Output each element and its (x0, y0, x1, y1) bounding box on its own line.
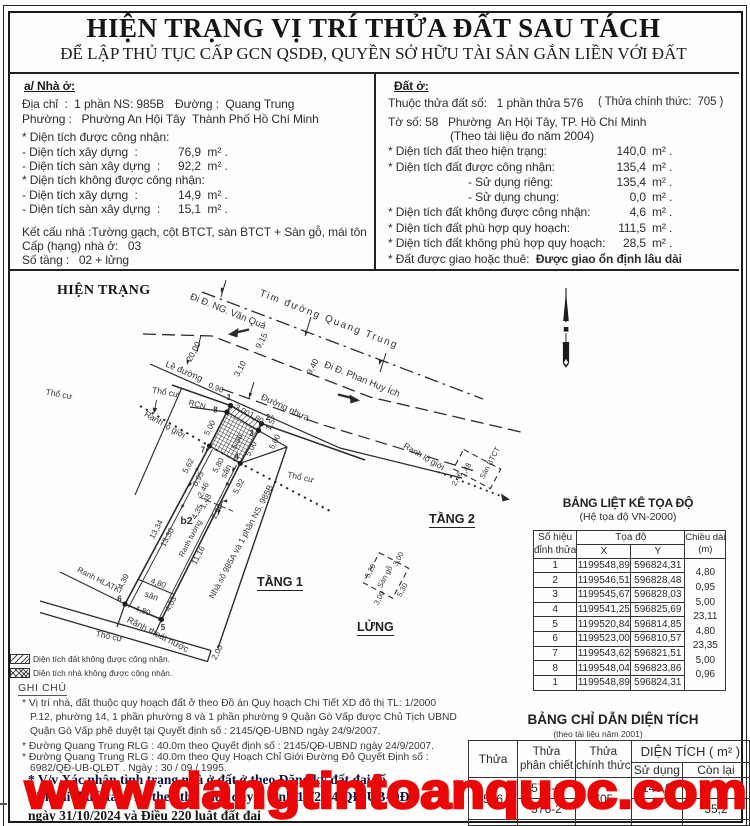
svg-text:5: 5 (161, 623, 166, 632)
svg-text:Đi Đ. NG. Văn Quá: Đi Đ. NG. Văn Quá (188, 291, 268, 332)
svg-text:Thổ cư: Thổ cư (95, 628, 124, 643)
svg-text:2,00: 2,00 (210, 643, 226, 661)
svg-text:5,92: 5,92 (231, 477, 247, 495)
svg-text:5,00: 5,00 (267, 432, 283, 450)
svg-text:7: 7 (201, 446, 206, 455)
svg-text:Ranh lộ giới: Ranh lộ giới (143, 409, 188, 441)
svg-text:b2: b2 (180, 515, 192, 527)
svg-text:3,00: 3,00 (372, 589, 387, 606)
svg-text:2,00: 2,00 (210, 502, 226, 520)
svg-text:3: 3 (249, 429, 254, 438)
svg-text:Sàn BTCT: Sàn BTCT (478, 445, 503, 481)
svg-text:Lề đường: Lề đường (164, 359, 204, 384)
svg-text:4: 4 (234, 453, 239, 462)
svg-text:2: 2 (266, 413, 271, 422)
svg-text:Rãnh thoát nước: Rãnh thoát nước (125, 614, 191, 654)
svg-text:8: 8 (213, 406, 218, 415)
svg-text:RCN: RCN (188, 398, 207, 411)
svg-text:20,00: 20,00 (184, 340, 203, 364)
svg-text:1: 1 (227, 393, 232, 402)
svg-text:3,00: 3,00 (391, 550, 406, 567)
svg-text:sân: sân (143, 589, 160, 603)
svg-text:5,20: 5,20 (363, 562, 378, 579)
svg-text:3,10: 3,10 (232, 359, 249, 379)
svg-text:Tim đường Quang Trung: Tim đường Quang Trung (258, 288, 400, 351)
svg-text:4,80: 4,80 (134, 604, 152, 618)
svg-text:Thổ cư: Thổ cư (45, 387, 74, 402)
svg-text:11,16: 11,16 (190, 544, 207, 566)
svg-text:Ranh lộ giới: Ranh lộ giới (402, 441, 447, 473)
svg-text:5,30: 5,30 (395, 581, 410, 598)
svg-text:Sàn gỗ: Sàn gỗ (375, 564, 394, 589)
svg-text:9,15: 9,15 (253, 331, 270, 351)
svg-text:4,03: 4,03 (163, 594, 179, 612)
svg-text:Thổ cư: Thổ cư (286, 469, 315, 484)
svg-text:5,62: 5,62 (181, 456, 197, 474)
svg-text:6: 6 (117, 595, 122, 604)
svg-text:9,40: 9,40 (304, 357, 321, 377)
